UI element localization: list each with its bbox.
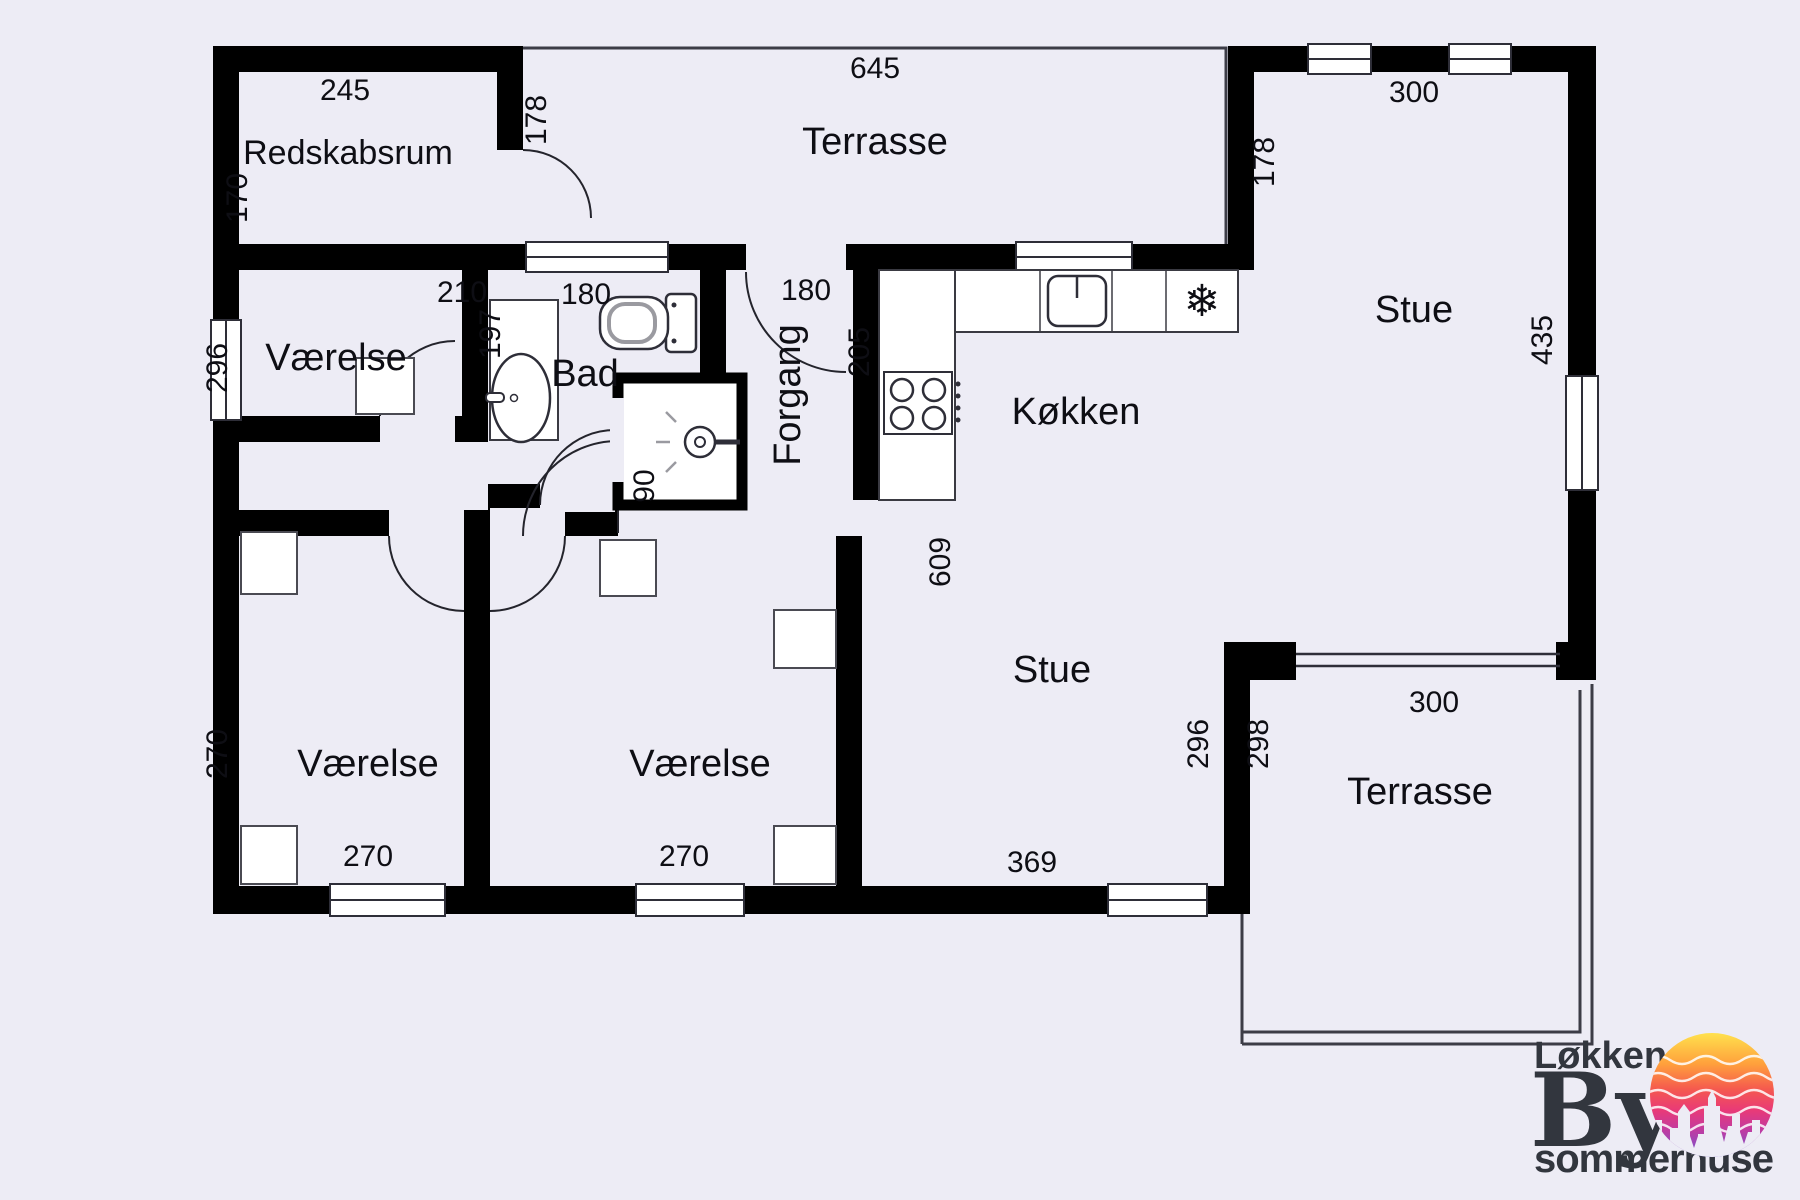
- opening-vaerelse3: [389, 508, 464, 538]
- dim-stue-h: 609: [924, 537, 957, 587]
- label-vaerelse-3: Værelse: [297, 743, 439, 785]
- stove-icon: [884, 372, 961, 434]
- label-redskabsrum: Redskabsrum: [243, 134, 453, 172]
- dim-stue-wall-in: 296: [1182, 719, 1215, 769]
- dim-bad-window: 180: [561, 278, 611, 311]
- freezer-icon: ❄: [1184, 277, 1221, 326]
- dim-stue-right-h: 435: [1526, 315, 1559, 365]
- wall-stue-terrace-divider: [1224, 680, 1250, 886]
- floorplan-page: ❄ Redskabsrum Terrasse Stue Køkken Bad F…: [0, 0, 1800, 1200]
- closet-vaerelse2-top: [600, 540, 656, 596]
- dim-vaerelse1-w: 210: [437, 276, 487, 309]
- dim-vaerelse1-h: 296: [201, 343, 234, 393]
- kitchen-sink-icon: [1048, 276, 1106, 326]
- wall-se-corner: [1556, 642, 1596, 680]
- label-vaerelse-2: Værelse: [629, 743, 771, 785]
- wall-top-stue: [1254, 46, 1596, 72]
- label-vaerelse-1: Værelse: [265, 337, 407, 379]
- window-bad: [526, 242, 668, 272]
- wall-top-redskabsrum: [213, 46, 523, 72]
- window-bottom-vaerelse3: [330, 884, 445, 916]
- dim-terrasse-bottom-w: 300: [1409, 686, 1459, 719]
- dim-entry-door: 180: [781, 274, 831, 307]
- shower-opening: [610, 398, 624, 482]
- label-terrasse-top: Terrasse: [802, 121, 948, 163]
- closet-vaerelse2-right-top: [774, 610, 836, 668]
- wall-vaerelse2-stue: [836, 536, 862, 886]
- dim-vaerelse3-h: 270: [201, 729, 234, 779]
- label-terrasse-bottom: Terrasse: [1347, 771, 1493, 813]
- closet-vaerelse2-right-bottom: [774, 826, 836, 884]
- opening-entry: [746, 242, 846, 272]
- wall-stue-terrace-cap: [1224, 642, 1296, 680]
- closet-vaerelse3-bottom: [241, 826, 297, 884]
- dim-redskabsrum-door: 178: [520, 95, 553, 145]
- label-stue-main: Stue: [1013, 649, 1091, 691]
- dim-stue-top-wall: 178: [1248, 137, 1281, 187]
- dim-stue-top-w: 300: [1389, 76, 1439, 109]
- dim-redskabsrum-w: 245: [320, 74, 370, 107]
- label-stue-top: Stue: [1375, 289, 1453, 331]
- window-stue-right: [1566, 376, 1598, 490]
- background: [0, 0, 1800, 1200]
- opening-bad: [540, 482, 615, 512]
- toilet-icon: [600, 294, 696, 352]
- dim-redskabsrum-h: 170: [221, 173, 254, 223]
- window-bottom-stue: [1108, 884, 1207, 916]
- closet-vaerelse3-top: [241, 532, 297, 594]
- opening-vaerelse1: [380, 414, 455, 444]
- dim-corridor-door: 90: [628, 469, 661, 502]
- dim-terrasse-top-w: 645: [850, 52, 900, 85]
- window-stue-top-2: [1449, 44, 1511, 74]
- floorplan-drawing: ❄ Redskabsrum Terrasse Stue Køkken Bad F…: [0, 0, 1800, 1200]
- window-bottom-vaerelse2: [636, 884, 744, 916]
- dim-koekken-h: 205: [843, 327, 876, 377]
- window-stue-top-1: [1308, 44, 1371, 74]
- label-koekken: Køkken: [1012, 391, 1141, 433]
- window-koekken: [1016, 242, 1132, 272]
- logo: Løkken By sommerhuse: [1530, 1033, 1790, 1181]
- opening-vaerelse2: [490, 508, 565, 538]
- dim-stue-w: 369: [1007, 846, 1057, 879]
- dim-bad-w: 197: [474, 309, 507, 359]
- wall-bedroom-divider: [464, 510, 490, 886]
- label-forgang: Forgang: [767, 324, 809, 466]
- label-bad: Bad: [551, 353, 619, 395]
- dim-vaerelse3-w: 270: [343, 840, 393, 873]
- dim-stue-wall-out: 298: [1242, 719, 1275, 769]
- dim-vaerelse2-w: 270: [659, 840, 709, 873]
